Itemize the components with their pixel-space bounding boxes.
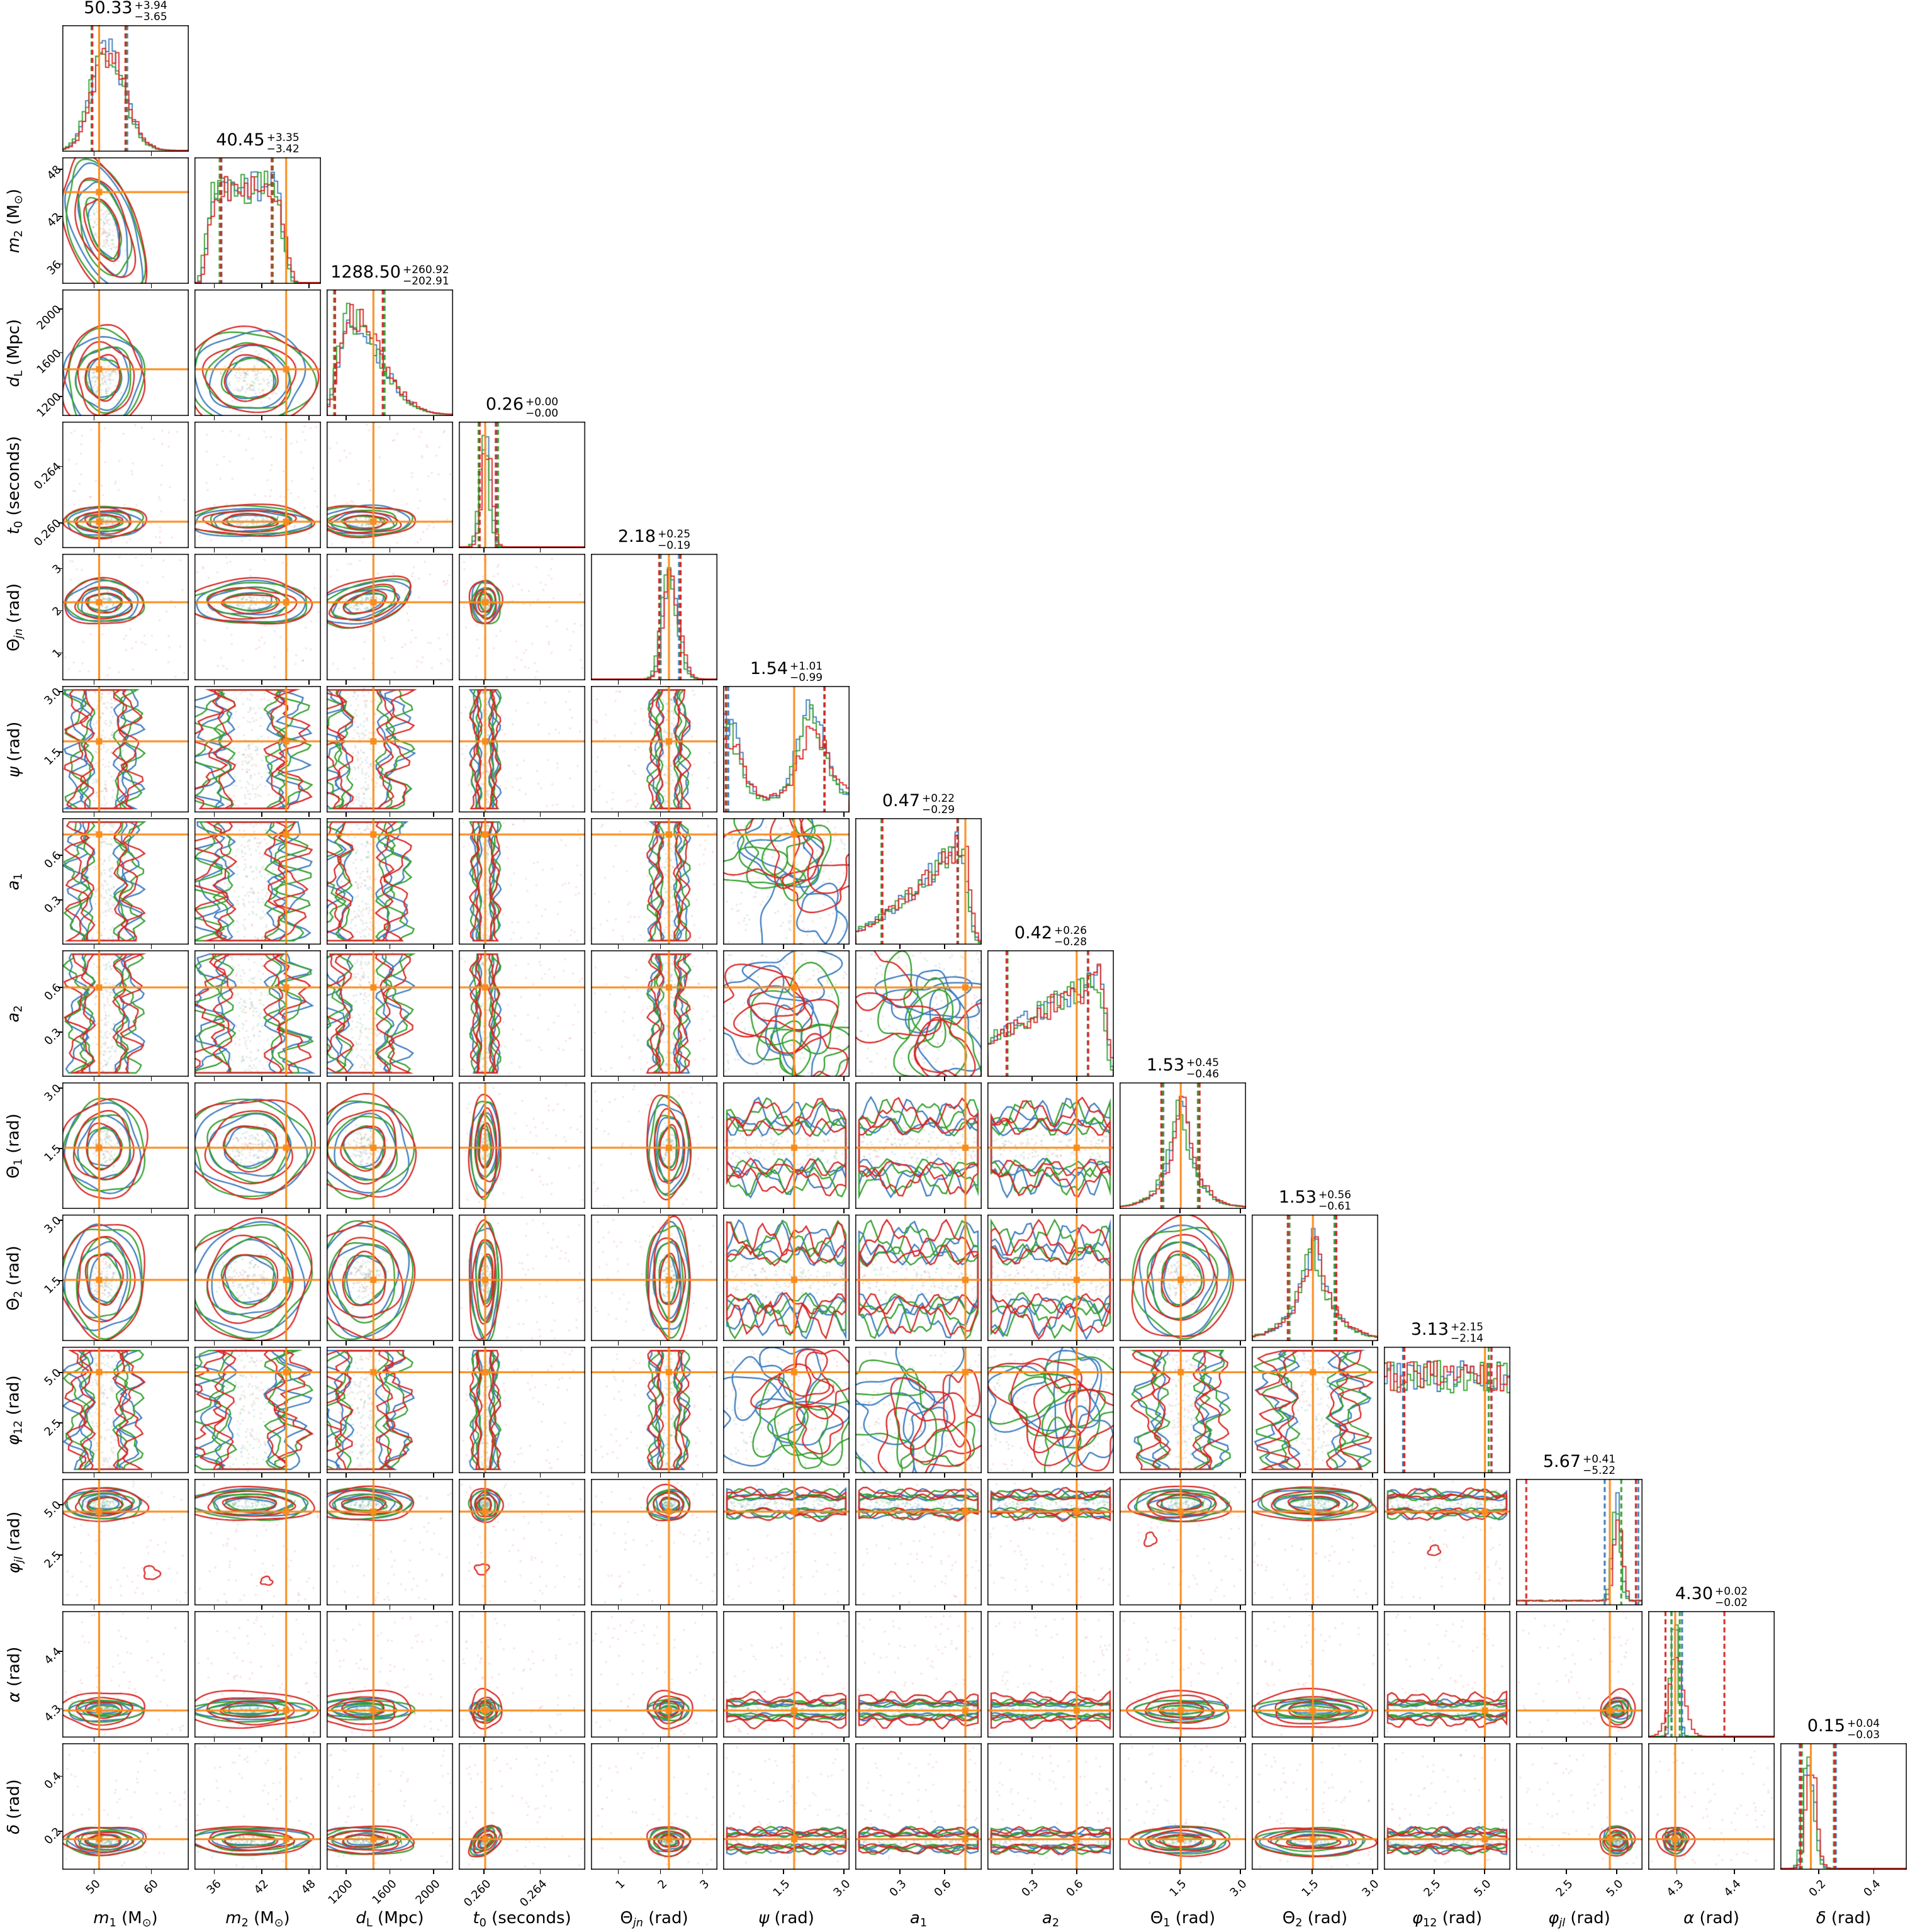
x-tick-label: 1.5 — [1167, 1877, 1189, 1899]
x-tick-label: 1600 — [369, 1877, 399, 1907]
contour-canvas — [327, 1215, 453, 1341]
x-tick-label: 42 — [252, 1877, 271, 1897]
y-tick-label: 0.4 — [42, 1770, 64, 1792]
panel-alpha-vs-theta1 — [1120, 1611, 1246, 1738]
x-tick-mark — [1566, 1738, 1567, 1742]
x-tick-mark — [308, 1341, 310, 1345]
contour-canvas — [723, 1611, 850, 1738]
x-tick-mark — [660, 680, 661, 685]
x-tick-mark — [94, 416, 95, 420]
title-median: 40.45 — [216, 131, 264, 150]
contour-canvas — [459, 1611, 585, 1738]
x-tick-mark — [1179, 1605, 1181, 1610]
x-tick-mark — [783, 1209, 784, 1213]
label-part: 1 — [13, 873, 25, 880]
x-tick-mark — [94, 284, 95, 288]
x-tick-mark — [540, 1341, 541, 1345]
x-tick-mark — [899, 1341, 901, 1345]
label-part: (rad) — [1437, 1909, 1482, 1928]
x-tick-mark — [483, 1605, 485, 1610]
y-tick-label: 1600 — [35, 347, 64, 376]
y-axis-label-text: m2 (M⊙) — [4, 188, 23, 252]
x-tick-label: 2000 — [413, 1877, 442, 1907]
label-part: L — [366, 1917, 373, 1929]
x-tick-mark — [944, 945, 945, 949]
y-tick-label: 0.6 — [42, 981, 64, 1003]
x-tick-label: 60 — [141, 1877, 160, 1897]
panel-theta1-vs-m2 — [194, 1082, 321, 1209]
label-part: ⊙ — [142, 1917, 152, 1929]
x-tick-mark — [261, 284, 262, 288]
x-tick-mark — [151, 1605, 152, 1610]
x-tick-mark — [345, 1738, 347, 1742]
x-tick-mark — [944, 1209, 945, 1213]
x-tick-mark — [899, 1870, 901, 1874]
x-tick-mark — [261, 945, 262, 949]
x-axis-label-m2: m2 (M⊙) — [194, 1909, 321, 1928]
x-tick-mark — [390, 1341, 391, 1345]
panel-phi_jl-vs-theta2 — [1252, 1479, 1378, 1605]
contour-canvas — [987, 1347, 1114, 1473]
x-tick-label: 4.3 — [1664, 1877, 1686, 1899]
contour-canvas — [1252, 1347, 1378, 1473]
contour-canvas — [62, 818, 189, 945]
y-axis-label-alpha: α (rad) — [1, 1611, 26, 1738]
x-tick-mark — [1076, 1209, 1077, 1213]
label-part: (Mpc) — [4, 318, 23, 370]
contour-canvas — [591, 1082, 717, 1209]
y-tick-label: 2000 — [35, 303, 64, 332]
panel-psi-vs-t0 — [459, 686, 585, 812]
label-part: 0 — [480, 1917, 486, 1929]
x-tick-mark — [618, 1341, 619, 1345]
contour-canvas — [327, 1082, 453, 1209]
panel-t0-vs-m2 — [194, 422, 321, 548]
panel-t0-vs-m1 — [62, 422, 189, 548]
label-part: jl — [1559, 1917, 1565, 1929]
label-part: ⊙ — [13, 194, 25, 204]
title-median: 5.67 — [1543, 1452, 1581, 1471]
histogram-canvas — [327, 289, 453, 416]
panel-phi_jl-vs-psi — [723, 1479, 850, 1605]
contour-canvas — [62, 686, 189, 812]
panel-alpha-vs-theta2 — [1252, 1611, 1378, 1738]
x-tick-mark — [1311, 1473, 1313, 1478]
panel-delta-vs-theta_jn — [591, 1743, 717, 1870]
x-tick-mark — [483, 1473, 485, 1478]
y-tick-label: 4.3 — [42, 1702, 64, 1724]
contour-canvas — [194, 554, 321, 680]
contour-canvas — [194, 1082, 321, 1209]
x-tick-mark — [540, 1077, 541, 1081]
x-tick-mark — [94, 1341, 95, 1345]
x-tick-mark — [1734, 1738, 1735, 1742]
title-median: 1.53 — [1279, 1188, 1317, 1207]
x-tick-label: 50 — [84, 1877, 103, 1897]
y-axis-label-delta: δ (rad) — [1, 1743, 26, 1870]
x-tick-mark — [390, 1738, 391, 1742]
panel-a2-vs-psi — [723, 950, 850, 1077]
x-axis-label-theta2: Θ2 (rad) — [1252, 1909, 1378, 1928]
label-part: 12 — [1423, 1917, 1437, 1929]
x-tick-mark — [345, 416, 347, 420]
x-tick-label: 0.3 — [887, 1877, 909, 1899]
x-tick-mark — [540, 680, 541, 685]
contour-canvas — [459, 950, 585, 1077]
label-part: 1 — [920, 1917, 927, 1929]
hist-m1: 50.33+3.94−3.65 — [62, 25, 189, 152]
y-tick-label: 1.5 — [42, 746, 64, 768]
x-tick-mark — [390, 1209, 391, 1213]
x-tick-label: 0.3 — [1019, 1877, 1042, 1899]
y-axis-label-text: a1 — [4, 873, 23, 890]
contour-canvas — [194, 686, 321, 812]
hist-alpha: 4.30+0.02−0.02 — [1648, 1611, 1775, 1738]
x-tick-mark — [899, 1077, 901, 1081]
label-part: (rad) — [4, 1245, 23, 1291]
y-axis-label-phi_jl: φjl (rad) — [1, 1479, 26, 1605]
label-part: (rad) — [643, 1909, 688, 1928]
panel-phi_jl-vs-a2 — [987, 1479, 1114, 1605]
x-tick-mark — [660, 1209, 661, 1213]
x-tick-mark — [702, 680, 704, 685]
label-part: (rad) — [4, 721, 23, 767]
panel-m2-vs-m1 — [62, 157, 189, 284]
y-tick-label: 3.0 — [42, 685, 64, 707]
contour-canvas — [1252, 1611, 1378, 1738]
x-tick-mark — [308, 680, 310, 685]
panel-dL-vs-m1 — [62, 289, 189, 416]
x-axis-label-m1: m1 (M⊙) — [62, 1909, 189, 1928]
x-tick-mark — [390, 945, 391, 949]
x-tick-mark — [94, 812, 95, 817]
label-part: Θ — [4, 1165, 23, 1178]
title-errors: +3.35−3.42 — [267, 133, 300, 155]
histogram-canvas — [987, 950, 1114, 1077]
x-tick-mark — [783, 1870, 784, 1874]
x-tick-mark — [1676, 1738, 1678, 1742]
panel-a2-vs-a1 — [855, 950, 982, 1077]
contour-canvas — [459, 1743, 585, 1870]
x-tick-mark — [483, 945, 485, 949]
panel-delta-vs-phi12 — [1384, 1743, 1510, 1870]
x-tick-mark — [660, 1473, 661, 1478]
title-errors: +260.92−202.91 — [403, 265, 449, 288]
x-tick-mark — [483, 1870, 485, 1874]
contour-canvas — [855, 1743, 982, 1870]
x-tick-mark — [151, 284, 152, 288]
histogram-canvas — [1384, 1347, 1510, 1473]
x-tick-mark — [1434, 1605, 1435, 1610]
contour-canvas — [591, 950, 717, 1077]
contour-canvas — [62, 1611, 189, 1738]
label-part: φ — [4, 1434, 23, 1445]
x-tick-label: 48 — [299, 1877, 318, 1897]
title-errors: +3.94−3.65 — [135, 1, 167, 23]
x-tick-mark — [151, 680, 152, 685]
x-tick-mark — [783, 1473, 784, 1478]
x-tick-mark — [433, 416, 434, 420]
panel-alpha-vs-m2 — [194, 1611, 321, 1738]
title-minus: −5.22 — [1583, 1466, 1615, 1477]
contour-canvas — [1516, 1611, 1643, 1738]
panel-a2-vs-m1 — [62, 950, 189, 1077]
x-axis-label-dL: dL (Mpc) — [327, 1909, 453, 1928]
x-tick-mark — [483, 812, 485, 817]
contour-canvas — [194, 950, 321, 1077]
x-tick-mark — [308, 1870, 310, 1874]
contour-canvas — [1648, 1743, 1775, 1870]
x-tick-mark — [345, 1605, 347, 1610]
contour-canvas — [194, 1611, 321, 1738]
contour-canvas — [987, 1215, 1114, 1341]
hist-dL: 1288.50+260.92−202.91 — [327, 289, 453, 416]
panel-theta2-vs-m1 — [62, 1215, 189, 1341]
x-tick-mark — [261, 1209, 262, 1213]
panel-theta1-vs-a2 — [987, 1082, 1114, 1209]
x-tick-mark — [345, 1473, 347, 1478]
contour-canvas — [327, 950, 453, 1077]
title-median: 1288.50 — [330, 263, 401, 282]
y-tick-label: 0.260 — [32, 517, 64, 549]
x-tick-mark — [1179, 1341, 1181, 1345]
contour-canvas — [723, 950, 850, 1077]
x-tick-label: 2 — [655, 1877, 670, 1892]
x-tick-mark — [843, 1870, 845, 1874]
panel-theta1-vs-psi — [723, 1082, 850, 1209]
y-axis-label-theta_jn: Θjn (rad) — [1, 554, 26, 680]
contour-canvas — [459, 1347, 585, 1473]
x-tick-mark — [702, 1341, 704, 1345]
x-tick-label: 1200 — [326, 1877, 356, 1907]
x-tick-label: 1.5 — [771, 1877, 793, 1899]
label-part: δ — [1816, 1909, 1826, 1928]
contour-canvas — [987, 1479, 1114, 1605]
x-axis-label-psi: ψ (rad) — [723, 1909, 850, 1928]
x-tick-mark — [261, 1738, 262, 1742]
x-tick-mark — [660, 1738, 661, 1742]
title-median: 0.15 — [1807, 1717, 1845, 1736]
contour-canvas — [591, 1743, 717, 1870]
x-tick-mark — [433, 1473, 434, 1478]
contour-canvas — [194, 1347, 321, 1473]
x-tick-mark — [1179, 1473, 1181, 1478]
hist-delta: 0.15+0.04−0.03 — [1780, 1743, 1907, 1870]
label-part: (seconds) — [486, 1909, 571, 1928]
panel-theta_jn-vs-m1 — [62, 554, 189, 680]
contour-canvas — [591, 1611, 717, 1738]
x-tick-mark — [390, 548, 391, 553]
x-tick-label: 4.4 — [1722, 1877, 1744, 1899]
x-tick-mark — [618, 680, 619, 685]
x-tick-mark — [843, 1077, 845, 1081]
title-errors: +0.25−0.19 — [658, 529, 690, 552]
x-tick-mark — [433, 1738, 434, 1742]
contour-canvas — [62, 1082, 189, 1209]
panel-a1-vs-t0 — [459, 818, 585, 945]
label-part: δ — [4, 1824, 23, 1834]
x-tick-mark — [702, 1209, 704, 1213]
x-tick-mark — [261, 548, 262, 553]
label-part: 2 — [1052, 1917, 1059, 1929]
hist-theta1: 1.53+0.45−0.46 — [1120, 1082, 1246, 1209]
label-part: (rad) — [1171, 1909, 1216, 1928]
x-tick-mark — [618, 1473, 619, 1478]
panel-title-theta2: 1.53+0.56−0.61 — [1252, 1188, 1378, 1212]
x-tick-mark — [540, 812, 541, 817]
x-tick-mark — [660, 812, 661, 817]
panel-phi12-vs-theta_jn — [591, 1347, 717, 1473]
contour-canvas — [194, 1479, 321, 1605]
x-tick-mark — [1676, 1870, 1678, 1874]
label-part: d — [4, 376, 23, 387]
title-errors: +0.22−0.29 — [922, 794, 955, 816]
contour-canvas — [327, 554, 453, 680]
x-tick-mark — [899, 945, 901, 949]
label-part: 12 — [13, 1420, 25, 1435]
x-tick-mark — [433, 1341, 434, 1345]
x-tick-mark — [214, 945, 215, 949]
panel-title-theta1: 1.53+0.45−0.46 — [1120, 1056, 1246, 1080]
contour-canvas — [62, 1479, 189, 1605]
contour-canvas — [723, 1082, 850, 1209]
panel-title-m1: 50.33+3.94−3.65 — [62, 0, 189, 23]
panel-phi_jl-vs-m1 — [62, 1479, 189, 1605]
y-tick-label: 4.4 — [42, 1645, 64, 1667]
x-axis-label-delta: δ (rad) — [1780, 1909, 1907, 1928]
x-tick-label: 1.5 — [1300, 1877, 1322, 1899]
hist-m2: 40.45+3.35−3.42 — [194, 157, 321, 284]
x-tick-mark — [308, 416, 310, 420]
label-part: (M — [4, 204, 23, 230]
x-tick-mark — [214, 1077, 215, 1081]
x-tick-label: 0.264 — [517, 1877, 549, 1909]
y-tick-label: 1200 — [35, 390, 64, 420]
panel-theta1-vs-m1 — [62, 1082, 189, 1209]
x-tick-mark — [843, 1738, 845, 1742]
x-tick-mark — [618, 812, 619, 817]
x-tick-label: 0.6 — [1064, 1877, 1086, 1899]
y-axis-label-theta2: Θ2 (rad) — [1, 1215, 26, 1341]
title-minus: −0.00 — [525, 408, 558, 420]
x-tick-mark — [899, 1209, 901, 1213]
label-part: Θ — [4, 638, 23, 651]
panel-alpha-vs-phi_jl — [1516, 1611, 1643, 1738]
label-part: φ — [1548, 1909, 1559, 1928]
x-tick-mark — [214, 1209, 215, 1213]
x-tick-label: 2.5 — [1422, 1877, 1444, 1899]
x-axis-label-a2: a2 — [987, 1909, 1114, 1928]
x-tick-label: 3 — [697, 1877, 712, 1892]
label-part: (M — [249, 1909, 274, 1928]
label-part: 2 — [13, 1005, 25, 1012]
x-tick-mark — [540, 1738, 541, 1742]
x-tick-mark — [390, 812, 391, 817]
x-tick-mark — [783, 945, 784, 949]
x-tick-mark — [1484, 1738, 1485, 1742]
x-tick-mark — [944, 1473, 945, 1478]
y-axis-label-text: Θjn (rad) — [4, 583, 23, 651]
label-part: (Mpc) — [373, 1909, 424, 1928]
panel-psi-vs-m2 — [194, 686, 321, 812]
x-tick-mark — [1434, 1870, 1435, 1874]
contour-canvas — [327, 686, 453, 812]
title-errors: +1.01−0.99 — [790, 661, 823, 684]
panel-a1-vs-m1 — [62, 818, 189, 945]
x-tick-mark — [390, 1605, 391, 1610]
panel-title-a1: 0.47+0.22−0.29 — [855, 792, 982, 816]
title-errors: +0.02−0.02 — [1715, 1587, 1748, 1609]
label-part: 1 — [1163, 1917, 1170, 1929]
corner-plot-figure: 50.33+3.94−3.6540.45+3.35−3.421288.50+26… — [0, 0, 1932, 1932]
x-tick-mark — [540, 548, 541, 553]
title-minus: −3.42 — [267, 144, 300, 155]
title-median: 4.30 — [1675, 1585, 1713, 1603]
x-tick-mark — [843, 1209, 845, 1213]
x-tick-mark — [433, 548, 434, 553]
title-median: 1.54 — [750, 660, 788, 678]
panel-phi12-vs-dL — [327, 1347, 453, 1473]
x-tick-mark — [151, 1209, 152, 1213]
x-tick-mark — [308, 812, 310, 817]
x-tick-mark — [94, 152, 95, 156]
x-tick-mark — [1484, 1473, 1485, 1478]
panel-phi_jl-vs-m2 — [194, 1479, 321, 1605]
title-minus: −0.29 — [922, 805, 955, 816]
label-part: (rad) — [4, 1779, 23, 1824]
x-tick-mark — [944, 1738, 945, 1742]
panel-a1-vs-psi — [723, 818, 850, 945]
x-tick-mark — [151, 548, 152, 553]
label-part: Θ — [620, 1909, 632, 1928]
panel-title-m2: 40.45+3.35−3.42 — [194, 131, 321, 155]
contour-canvas — [62, 1215, 189, 1341]
label-part: m — [225, 1909, 241, 1928]
panel-alpha-vs-dL — [327, 1611, 453, 1738]
x-tick-mark — [94, 1209, 95, 1213]
hist-a2: 0.42+0.26−0.28 — [987, 950, 1114, 1077]
contour-canvas — [62, 1743, 189, 1870]
contour-canvas — [591, 818, 717, 945]
title-errors: +0.45−0.46 — [1186, 1058, 1219, 1081]
x-tick-mark — [261, 1077, 262, 1081]
x-tick-mark — [151, 1870, 152, 1874]
x-tick-mark — [433, 1209, 434, 1213]
x-tick-label: 0.260 — [461, 1877, 493, 1909]
x-tick-mark — [1818, 1870, 1819, 1874]
y-axis-label-text: α (rad) — [4, 1646, 23, 1702]
contour-canvas — [855, 1611, 982, 1738]
label-part: t — [473, 1909, 479, 1928]
x-tick-mark — [618, 1738, 619, 1742]
panel-theta2-vs-psi — [723, 1215, 850, 1341]
x-tick-mark — [1734, 1870, 1735, 1874]
x-tick-label: 0.6 — [932, 1877, 954, 1899]
x-tick-mark — [1076, 1473, 1077, 1478]
x-tick-mark — [261, 1341, 262, 1345]
y-axis-label-m2: m2 (M⊙) — [1, 157, 26, 284]
x-tick-label: 36 — [204, 1877, 223, 1897]
y-tick-label: 1.5 — [42, 1274, 64, 1296]
x-axis-label-t0: t0 (seconds) — [459, 1909, 585, 1928]
x-tick-mark — [151, 1473, 152, 1478]
panel-theta_jn-vs-t0 — [459, 554, 585, 680]
panel-theta2-vs-m2 — [194, 1215, 321, 1341]
title-minus: −0.61 — [1318, 1201, 1351, 1213]
contour-canvas — [194, 818, 321, 945]
x-tick-mark — [1031, 1738, 1033, 1742]
y-tick-label: 5.0 — [42, 1498, 64, 1520]
